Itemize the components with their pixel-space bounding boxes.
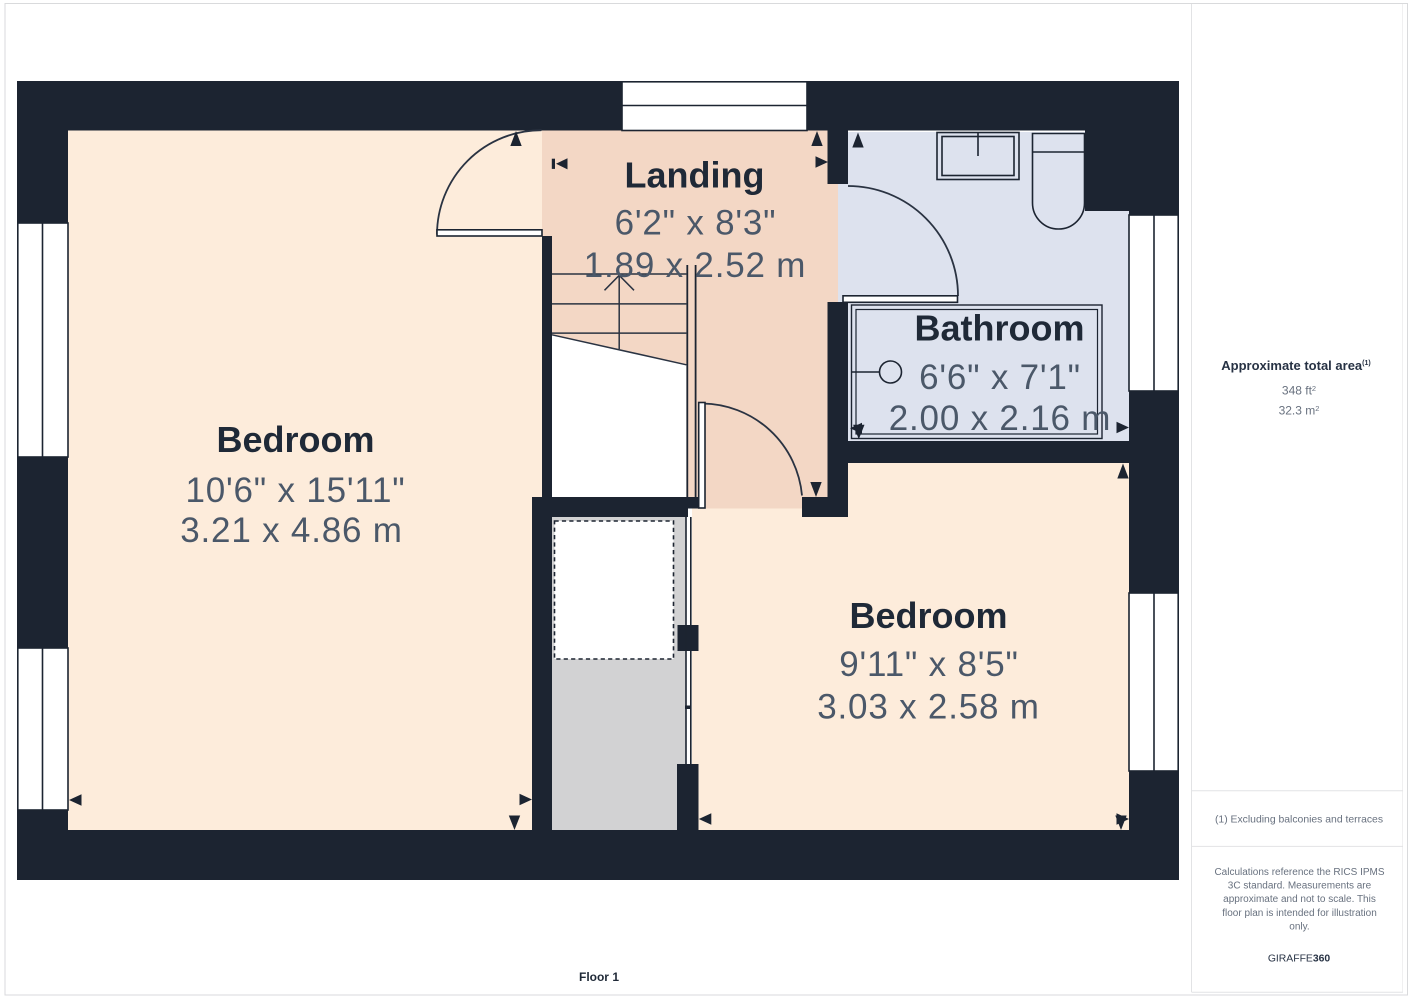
svg-text:10'6" x 15'11": 10'6" x 15'11" [185, 471, 405, 510]
svg-text:Floor 1: Floor 1 [579, 970, 619, 984]
svg-text:Bedroom: Bedroom [216, 419, 374, 460]
svg-text:1.89 x 2.52 m: 1.89 x 2.52 m [584, 246, 806, 285]
svg-text:6'6" x 7'1": 6'6" x 7'1" [919, 358, 1081, 397]
svg-text:Approximate total area(1): Approximate total area(1) [1221, 358, 1370, 373]
svg-text:only.: only. [1289, 921, 1309, 932]
svg-text:GIRAFFE360: GIRAFFE360 [1268, 954, 1331, 965]
svg-text:32.3 m2: 32.3 m2 [1279, 404, 1320, 418]
svg-text:3.21 x 4.86 m: 3.21 x 4.86 m [180, 511, 402, 550]
svg-text:2.00 x 2.16 m: 2.00 x 2.16 m [889, 399, 1111, 438]
svg-text:(1) Excluding balconies and te: (1) Excluding balconies and terraces [1215, 815, 1383, 826]
svg-text:Bathroom: Bathroom [915, 308, 1085, 349]
svg-text:Bedroom: Bedroom [849, 595, 1007, 636]
svg-text:3C standard. Measurements are: 3C standard. Measurements are [1228, 881, 1372, 892]
svg-text:floor plan is intended for ill: floor plan is intended for illustration [1222, 908, 1377, 919]
svg-text:approximate and not to scale.: approximate and not to scale. This [1223, 894, 1376, 905]
svg-text:Calculations reference the RIC: Calculations reference the RICS IPMS [1214, 867, 1384, 878]
svg-text:6'2" x 8'3": 6'2" x 8'3" [615, 204, 777, 243]
svg-text:Landing: Landing [625, 155, 765, 196]
svg-text:9'11" x 8'5": 9'11" x 8'5" [839, 645, 1019, 684]
svg-text:348 ft2: 348 ft2 [1282, 384, 1316, 398]
svg-text:3.03 x 2.58 m: 3.03 x 2.58 m [817, 688, 1039, 727]
